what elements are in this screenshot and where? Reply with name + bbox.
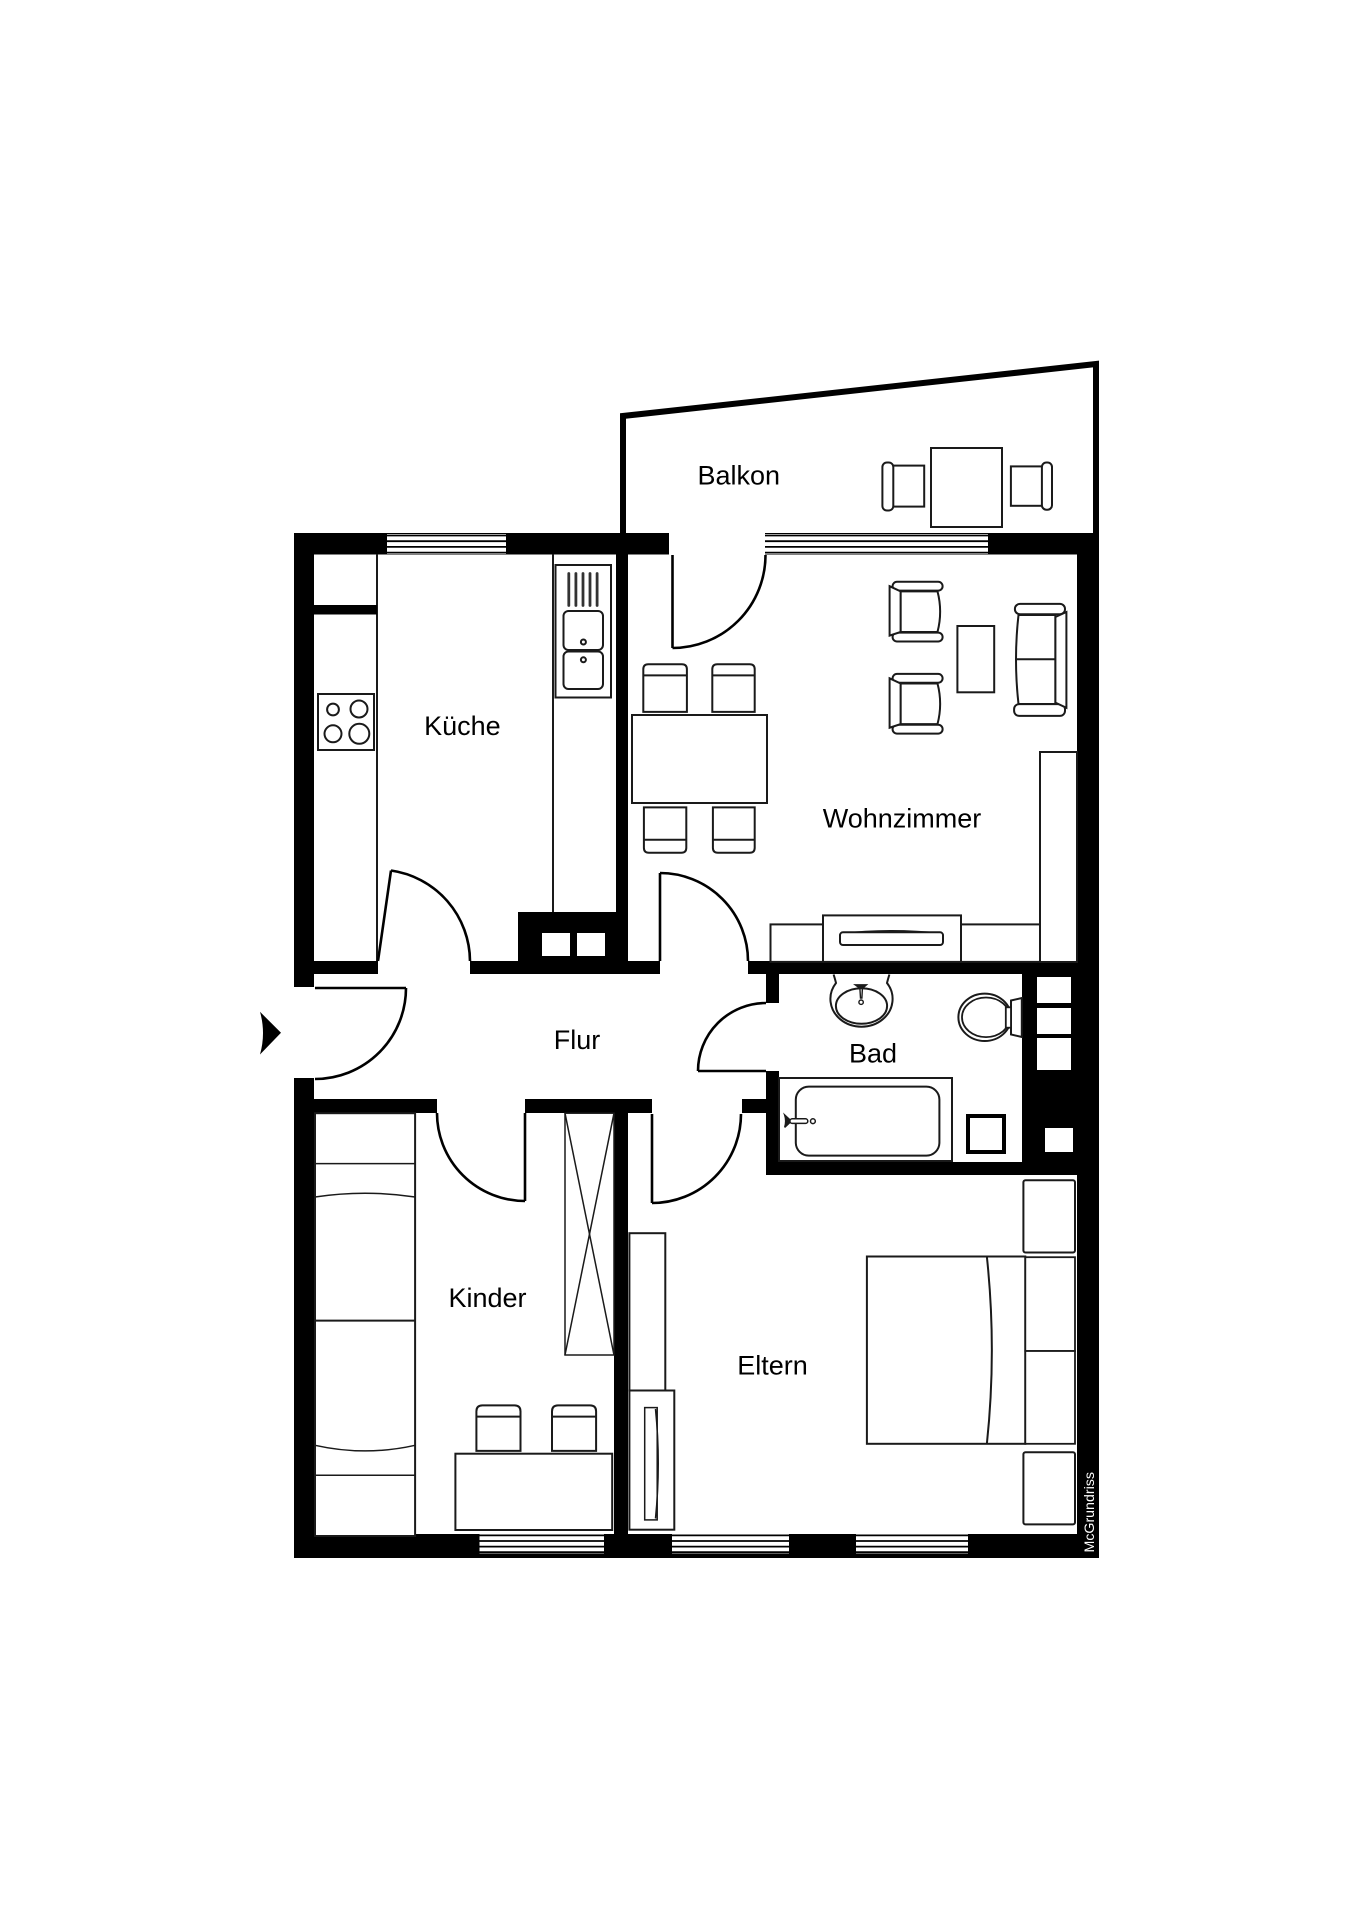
svg-text:Balkon: Balkon [698,461,781,491]
svg-text:Wohnzimmer: Wohnzimmer [823,804,982,834]
svg-text:Kinder: Kinder [448,1283,526,1313]
svg-text:McGrundriss: McGrundriss [1082,1472,1098,1552]
svg-text:Bad: Bad [849,1039,897,1069]
svg-text:Eltern: Eltern [737,1351,808,1381]
svg-text:Flur: Flur [554,1025,601,1055]
svg-text:Küche: Küche [424,711,501,741]
